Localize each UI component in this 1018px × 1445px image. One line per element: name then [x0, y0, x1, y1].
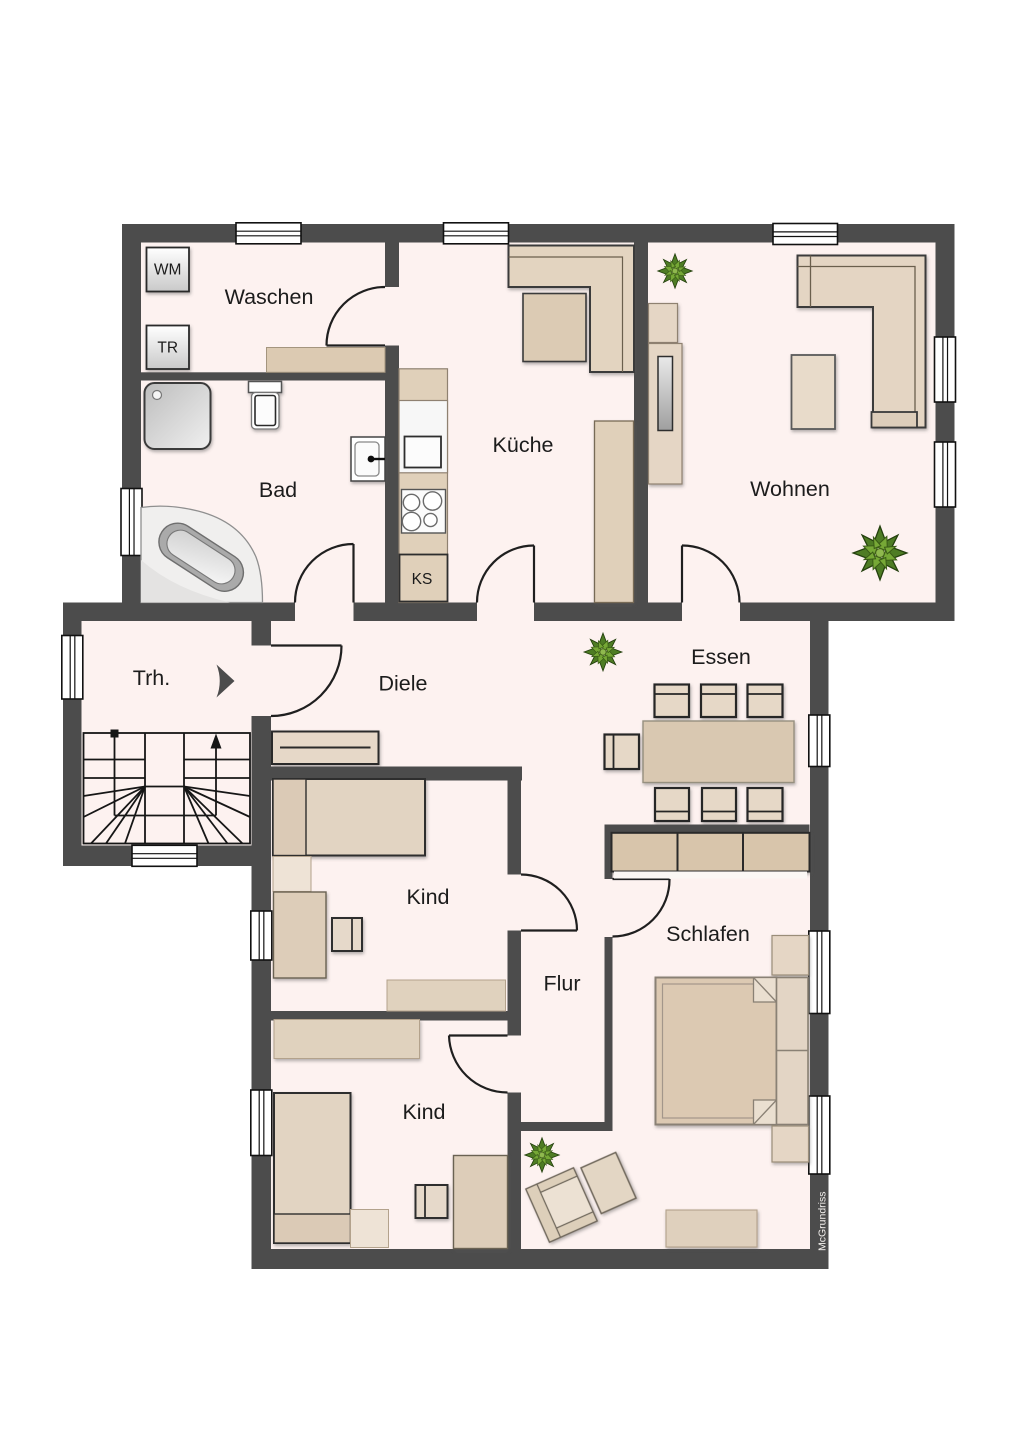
svg-text:Flur: Flur: [543, 972, 580, 996]
svg-text:Wohnen: Wohnen: [750, 477, 830, 501]
svg-text:Schlafen: Schlafen: [666, 922, 750, 946]
svg-text:KS: KS: [412, 571, 433, 588]
svg-text:Trh.: Trh.: [133, 666, 170, 690]
svg-text:Bad: Bad: [259, 478, 297, 502]
svg-text:Kind: Kind: [406, 885, 449, 909]
svg-text:Waschen: Waschen: [225, 285, 314, 309]
svg-text:Kind: Kind: [402, 1100, 445, 1124]
svg-text:McGrundriss: McGrundriss: [817, 1191, 829, 1251]
svg-text:Essen: Essen: [691, 645, 751, 669]
svg-text:TR: TR: [157, 340, 178, 357]
svg-text:Diele: Diele: [379, 672, 428, 696]
svg-text:Küche: Küche: [493, 433, 554, 457]
svg-text:WM: WM: [154, 262, 182, 279]
